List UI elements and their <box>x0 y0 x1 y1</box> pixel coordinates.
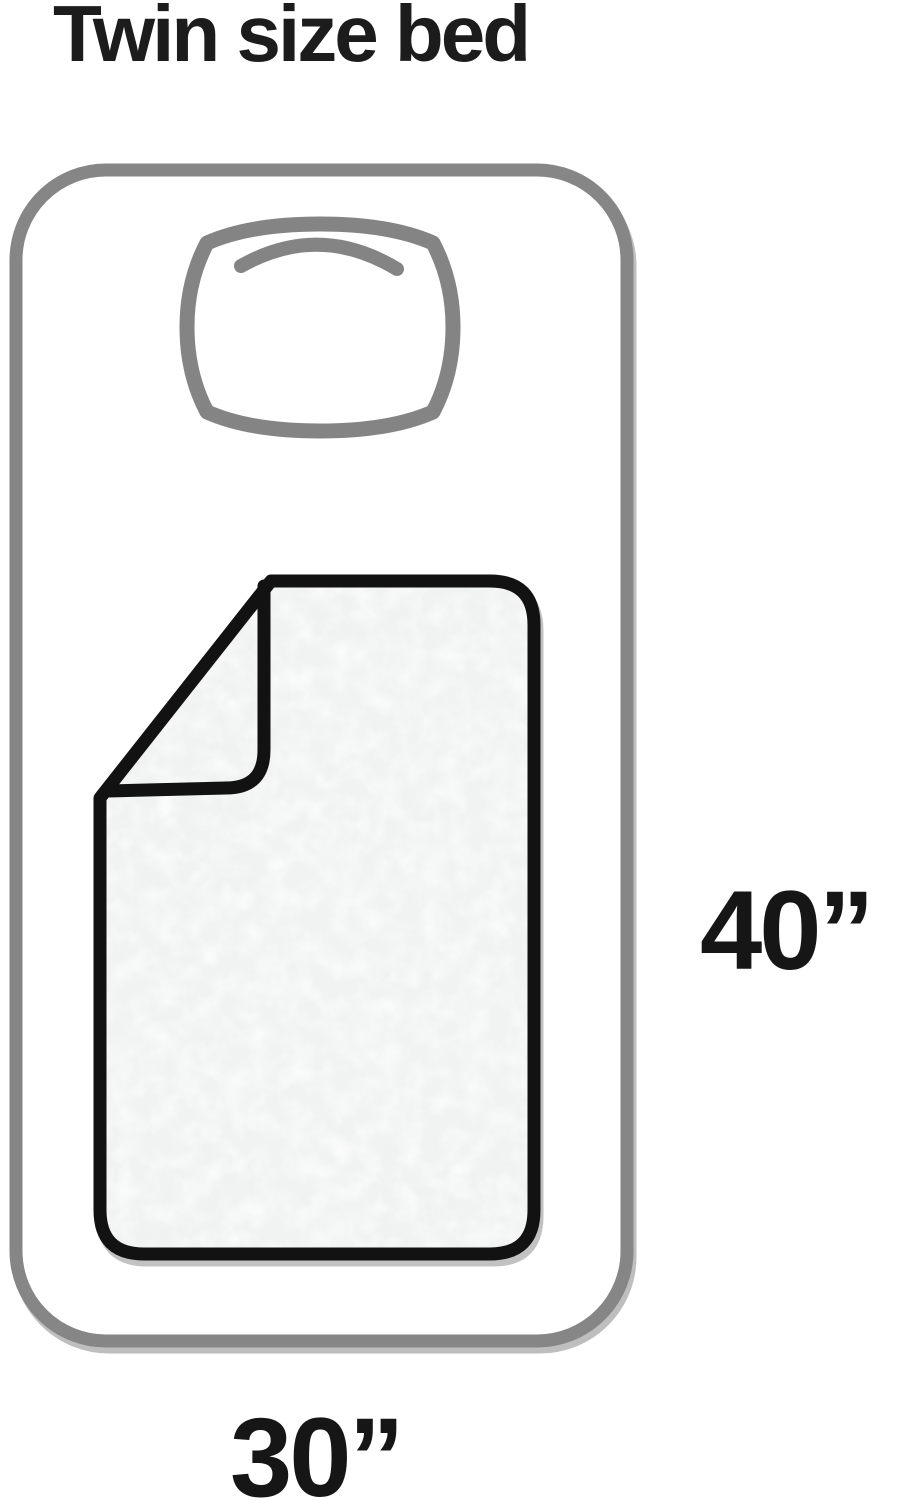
pillow-outline <box>187 224 453 431</box>
width-dimension-label: 30” <box>230 1402 402 1500</box>
pillow-icon <box>187 224 453 431</box>
product-dimension-diagram: Twin size bed <box>0 0 897 1500</box>
length-dimension-label: 40” <box>700 875 872 987</box>
bed-illustration <box>0 0 897 1500</box>
